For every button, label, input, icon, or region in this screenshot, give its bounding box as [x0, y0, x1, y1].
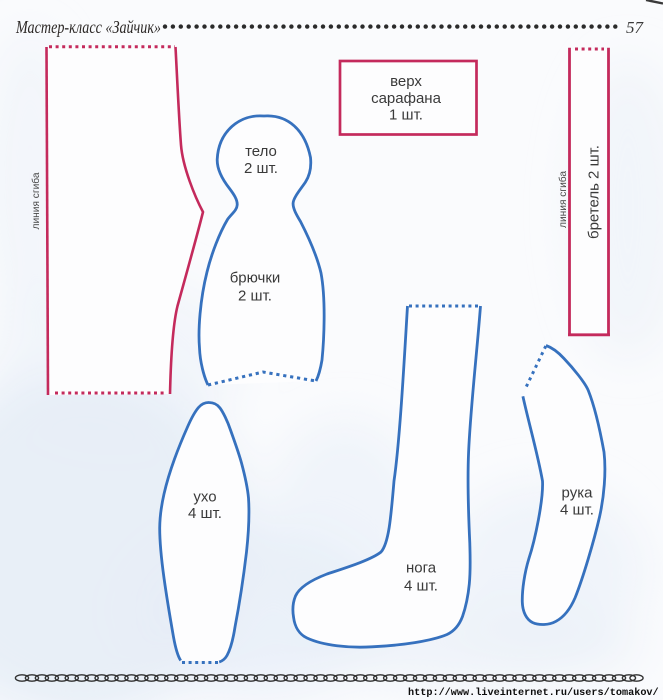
svg-text:ухо: ухо: [193, 488, 216, 505]
svg-text:4 шт.: 4 шт.: [188, 505, 222, 522]
svg-text:бретель 2 шт.: бретель 2 шт.: [586, 145, 603, 239]
svg-text:http://www.liveinternet.ru/use: http://www.liveinternet.ru/users/tomakov…: [408, 687, 659, 699]
svg-text:2 шт.: 2 шт.: [244, 160, 278, 177]
svg-text:нога: нога: [406, 560, 437, 577]
svg-text:сарафана: сарафана: [371, 90, 441, 107]
svg-text:брючки: брючки: [230, 269, 281, 286]
svg-text:57: 57: [626, 18, 645, 37]
svg-text:2 шт.: 2 шт.: [238, 287, 272, 304]
svg-text:тело: тело: [245, 143, 277, 160]
svg-text:1 шт.: 1 шт.: [389, 106, 423, 123]
svg-text:линия сгиба: линия сгиба: [30, 172, 42, 229]
svg-text:Мастер-класс «Зайчик»: Мастер-класс «Зайчик»: [15, 17, 161, 37]
svg-text:4 шт.: 4 шт.: [560, 502, 594, 519]
svg-text:рука: рука: [562, 485, 594, 502]
svg-text:верх: верх: [390, 73, 422, 90]
svg-text:линия сгиба: линия сгиба: [557, 171, 569, 228]
svg-text:4 шт.: 4 шт.: [404, 578, 438, 595]
